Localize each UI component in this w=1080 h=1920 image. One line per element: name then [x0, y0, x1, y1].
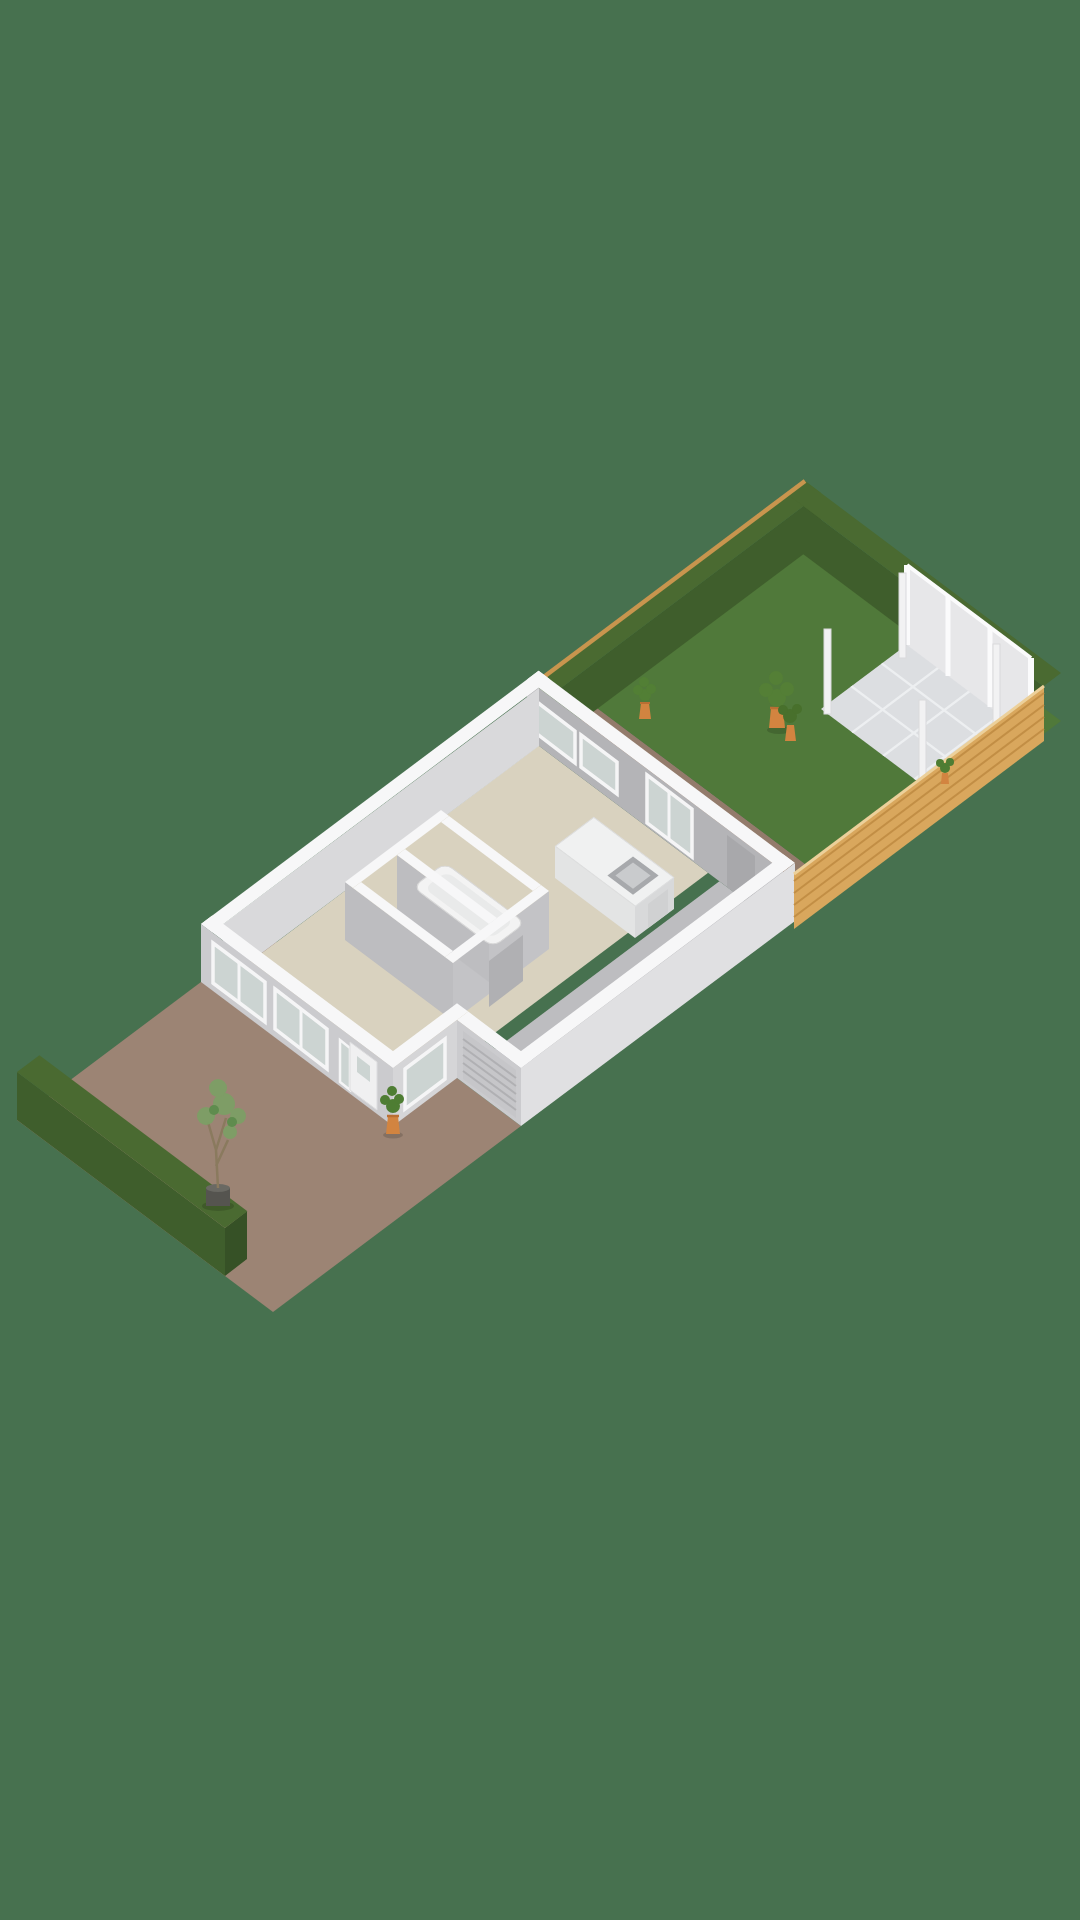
floorplan-3d-render [0, 0, 1080, 1920]
plant-pot [941, 773, 949, 784]
pergola-post [919, 700, 926, 785]
plant-pot [639, 703, 651, 719]
plant-pot [386, 1116, 400, 1134]
floorplan-scene [0, 0, 1080, 1920]
front-door-sidelight [340, 1040, 350, 1090]
pergola-post [899, 573, 906, 658]
tree-foliage-dark [209, 1105, 219, 1115]
tree-foliage-dark [227, 1117, 237, 1127]
pergola-post [824, 629, 831, 714]
pergola-post [993, 644, 1000, 729]
